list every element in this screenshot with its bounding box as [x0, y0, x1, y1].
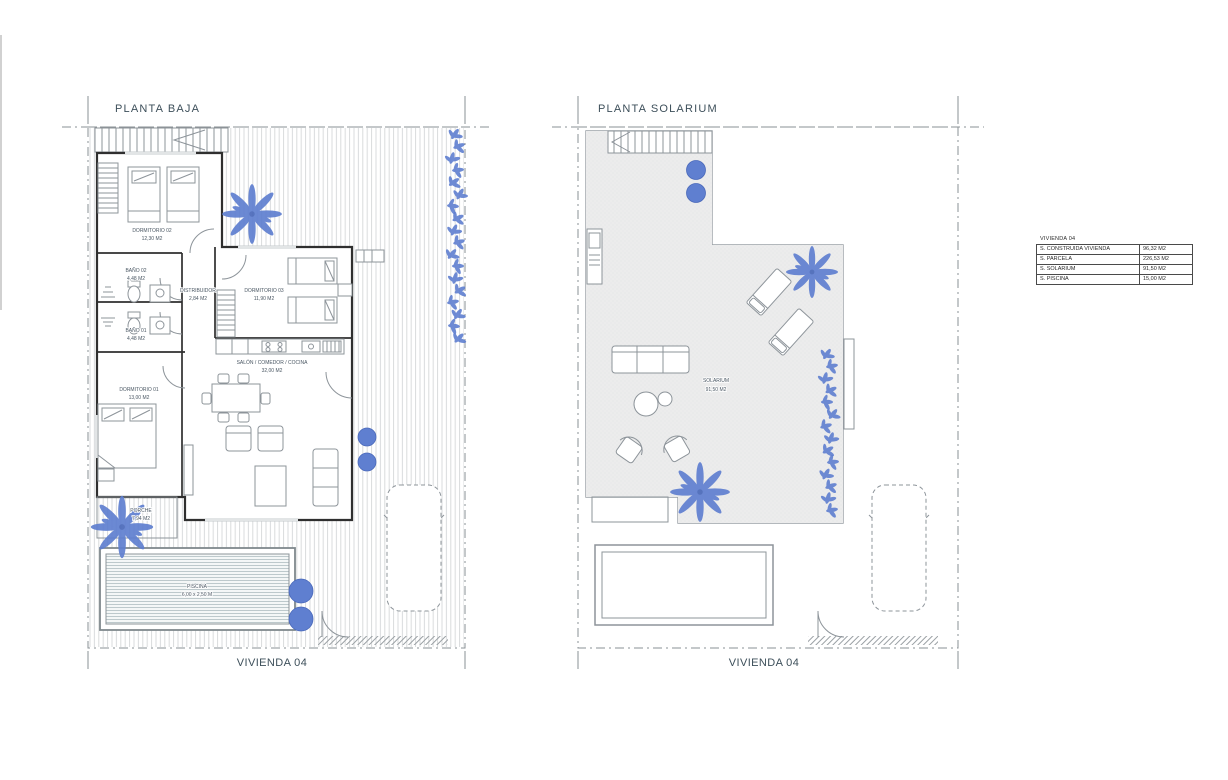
exterior-stairs: [95, 128, 228, 152]
floorplan-svg: DORMITORIO 02 12,30 M2 BAÑO 02 4,48 M2 B…: [0, 0, 1228, 780]
plan-baja: DORMITORIO 02 12,30 M2 BAÑO 02 4,48 M2 B…: [62, 96, 490, 669]
room-label: SOLARIUM: [703, 378, 729, 384]
drawing-sheet: DORMITORIO 02 12,30 M2 BAÑO 02 4,48 M2 B…: [0, 0, 1228, 780]
room-area: 7,94 M2: [132, 516, 150, 522]
coffee-table: [255, 466, 286, 506]
room-area: 11,90 M2: [254, 296, 275, 302]
summary-table-title: VIVIENDA 04: [1040, 236, 1193, 243]
potted-plant-icon: [687, 184, 706, 203]
bed: [128, 167, 160, 222]
potted-plant-icon: [358, 428, 376, 446]
car-outline: [869, 485, 929, 611]
outdoor-bar: [587, 229, 602, 284]
armchair: [226, 426, 251, 451]
summary-row: S. CONSTRUIDA VIVIENDA 96,32 M2: [1037, 245, 1192, 254]
pool-dims: 6,00 x 2,50 M: [182, 592, 212, 598]
room-area: 32,00 M2: [262, 368, 283, 374]
summary-row-value: 15,00 M2: [1140, 275, 1192, 284]
summary-row-label: S. CONSTRUIDA VIVIENDA: [1037, 245, 1140, 254]
room-area: 91,50 M2: [706, 387, 727, 393]
room-area: 13,00 M2: [129, 395, 150, 401]
bed: [167, 167, 199, 222]
palm-tree-icon: [222, 184, 282, 244]
room-area: 4,48 M2: [127, 276, 145, 282]
area-summary-table: VIVIENDA 04 S. CONSTRUIDA VIVIENDA 96,32…: [1036, 236, 1193, 285]
room-area: 2,84 M2: [189, 296, 207, 302]
summary-row: S. PISCINA 15,00 M2: [1037, 274, 1192, 284]
palm-tree-icon: [91, 496, 153, 558]
summary-row-label: S. SOLARIUM: [1037, 265, 1140, 274]
room-label: DORMITORIO 01: [119, 387, 159, 393]
kitchen-counter: [216, 339, 344, 354]
room-label: PORCHE: [130, 508, 152, 514]
dining-table: [212, 384, 260, 412]
planter-box: [844, 339, 854, 429]
summary-row-label: S. PISCINA: [1037, 275, 1140, 284]
potted-plant-icon: [358, 453, 376, 471]
palm-tree-icon: [786, 246, 838, 298]
palm-tree-icon: [670, 462, 730, 522]
bedroom2-furniture: [98, 163, 199, 222]
pool-label: PISCINA: [187, 584, 208, 590]
bed: [288, 297, 337, 323]
plan-footer-solarium: VIVIENDA 04: [729, 657, 799, 669]
summary-row: S. SOLARIUM 91,50 M2: [1037, 264, 1192, 274]
room-label: DORMITORIO 02: [132, 228, 172, 234]
plan-title-solarium: PLANTA SOLARIUM: [598, 103, 718, 115]
ac-unit: [356, 250, 384, 262]
car-outline: [384, 485, 444, 611]
summary-row: S. PARCELA 226,53 M2: [1037, 254, 1192, 264]
plan-footer-baja: VIVIENDA 04: [237, 657, 307, 669]
solarium-stairs: [608, 131, 712, 153]
potted-plant-icon: [289, 579, 313, 603]
room-area: 4,48 M2: [127, 336, 145, 342]
summary-row-value: 226,53 M2: [1140, 255, 1192, 264]
solarium-sofa: [612, 346, 689, 373]
sink: [302, 341, 320, 352]
pool-outline: [595, 545, 773, 625]
sofa: [313, 449, 338, 506]
room-label: BAÑO 02: [125, 267, 146, 274]
potted-plant-icon: [289, 607, 313, 631]
summary-row-value: 96,32 M2: [1140, 245, 1192, 254]
room-label: DISTRIBUIDOR: [180, 288, 216, 294]
room-label: SALÓN / COMEDOR / COCINA: [237, 359, 309, 366]
armchair: [258, 426, 283, 451]
room-area: 12,30 M2: [142, 236, 163, 242]
room-label: BAÑO 01: [125, 327, 146, 334]
plan-solarium: SOLARIUM 91,50 M2 PLANTA SOLARIUM VIVIEN…: [552, 96, 984, 669]
entrance-gate: [808, 611, 938, 645]
summary-row-value: 91,50 M2: [1140, 265, 1192, 274]
plan-title-baja: PLANTA BAJA: [115, 103, 200, 115]
roof-notch: [592, 497, 668, 522]
summary-table-grid: S. CONSTRUIDA VIVIENDA 96,32 M2 S. PARCE…: [1036, 244, 1193, 285]
round-table: [634, 392, 658, 416]
tv-unit: [184, 445, 193, 495]
room-label: DORMITORIO 03: [244, 288, 284, 294]
round-table: [658, 392, 672, 406]
potted-plant-icon: [687, 161, 706, 180]
bed: [288, 258, 337, 284]
summary-row-label: S. PARCELA: [1037, 255, 1140, 264]
stove: [262, 341, 286, 352]
